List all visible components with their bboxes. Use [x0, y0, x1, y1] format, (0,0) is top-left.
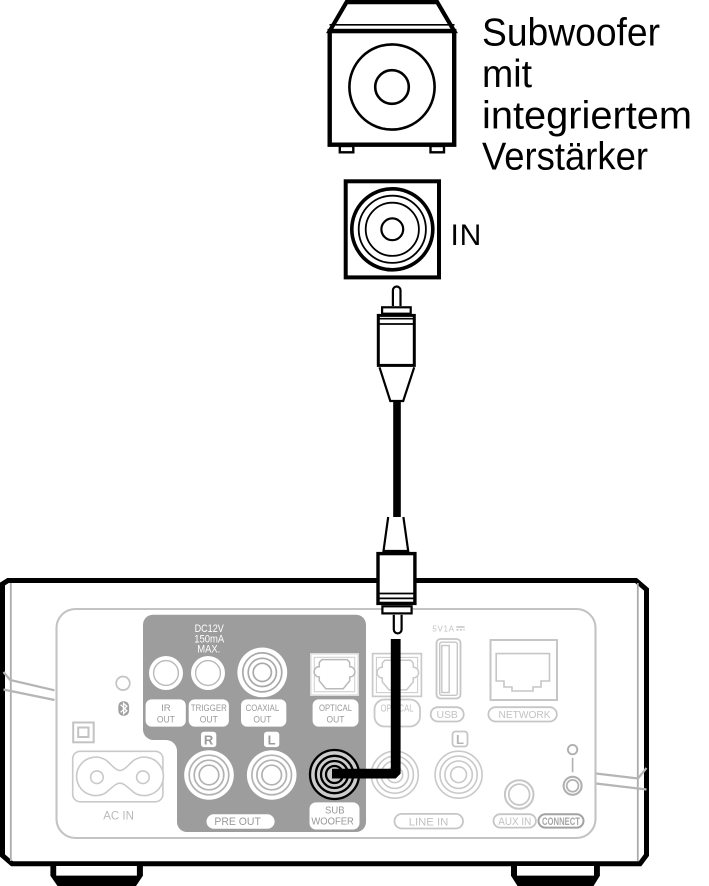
svg-text:OUT: OUT — [253, 714, 271, 725]
svg-text:CONNECT: CONNECT — [542, 816, 580, 828]
svg-text:L: L — [456, 732, 464, 747]
svg-text:OUT: OUT — [327, 714, 345, 725]
svg-text:Verstärker: Verstärker — [482, 135, 648, 178]
svg-text:USB: USB — [437, 710, 458, 721]
svg-text:IN: IN — [451, 219, 483, 252]
svg-text:WOOFER: WOOFER — [311, 817, 354, 828]
svg-text:MAX.: MAX. — [197, 643, 220, 655]
svg-text:5V1A: 5V1A — [432, 624, 454, 633]
svg-text:L: L — [268, 732, 276, 747]
svg-text:PRE OUT: PRE OUT — [214, 816, 261, 828]
svg-text:SUB: SUB — [325, 805, 345, 816]
svg-text:COAXIAL: COAXIAL — [246, 703, 280, 714]
svg-text:integriertem: integriertem — [482, 95, 692, 138]
svg-text:OPTICAL: OPTICAL — [319, 703, 353, 714]
svg-text:AC IN: AC IN — [103, 811, 134, 823]
svg-text:R: R — [204, 732, 214, 747]
svg-text:IR: IR — [161, 703, 171, 714]
svg-text:LINE IN: LINE IN — [409, 816, 449, 828]
svg-text:TRIGGER: TRIGGER — [191, 703, 227, 714]
svg-text:OUT: OUT — [157, 714, 175, 725]
svg-text:AUX IN: AUX IN — [498, 816, 531, 828]
svg-text:OUT: OUT — [200, 714, 218, 725]
svg-text:Subwoofer: Subwoofer — [482, 12, 660, 55]
svg-text:NETWORK: NETWORK — [499, 710, 551, 721]
svg-text:mit: mit — [482, 53, 532, 96]
